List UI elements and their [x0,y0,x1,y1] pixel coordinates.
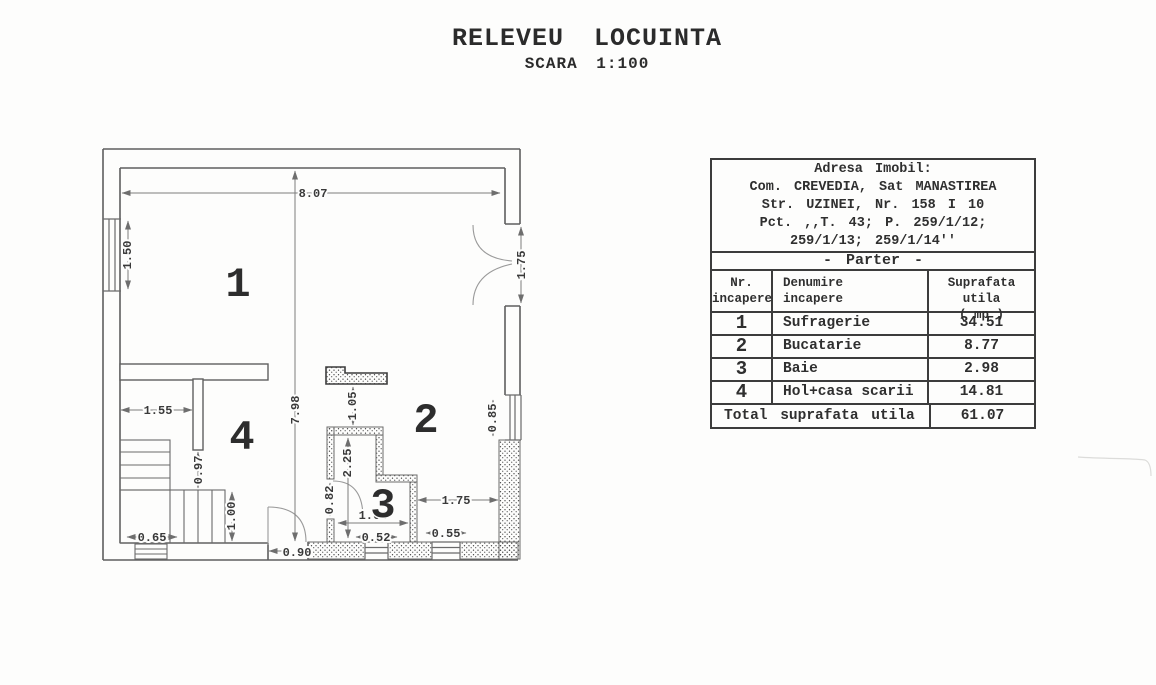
row-name: Hol+casa scarii [773,382,929,403]
table-total-row: Total suprafata utila 61.07 [712,405,1034,427]
dim-hall-width: 1.55 [144,404,173,418]
table-header: Nr. incapere Denumire incapere Suprafata… [712,271,1034,313]
table-row: 1 Sufragerie 34.51 [712,313,1034,336]
room-label-4: 4 [229,414,254,462]
page: RELEVEU LOCUINTA SCARA 1:100 [0,0,1156,685]
row-name: Bucatarie [773,336,929,357]
room-label-1: 1 [225,261,250,309]
row-area: 34.51 [929,313,1034,334]
row-area: 14.81 [929,382,1034,403]
address-line: 259/1/13; 259/1/14'' [712,233,1034,251]
address-line: Str. UZINEI, Nr. 158 I 10 [712,197,1034,215]
dim-window-bottom-2: 0.55 [432,527,461,541]
dim-height-left: 7.98 [289,396,303,425]
dim-door-right: 1.75 [515,251,529,280]
kitchen-counter [326,367,387,384]
scan-artifact [1075,445,1156,480]
dim-wall-stub: 0.97 [192,456,206,485]
dim-window-bottom-1: 0.52 [362,531,391,545]
address-block: Adresa Imobil: Com. CREVEDIA, Sat MANAST… [712,160,1034,253]
address-line: Pct. ,,T. 43; P. 259/1/12; [712,215,1034,233]
dim-window-right: 0.85 [486,404,500,433]
table-row: 4 Hol+casa scarii 14.81 [712,382,1034,405]
entry-door [268,507,306,545]
staircase [120,440,225,559]
window-left [103,219,121,291]
dim-stairs: 1.00 [225,502,239,531]
double-door-right [473,225,512,305]
dim-entry-door: 0.90 [283,546,312,560]
info-table: Adresa Imobil: Com. CREVEDIA, Sat MANAST… [710,158,1036,429]
row-name: Baie [773,359,929,380]
row-nr: 3 [712,359,773,380]
dim-width-top: 8.07 [299,187,328,201]
floor-label: - Parter - [712,253,1034,271]
window-bottom-2 [432,542,460,559]
dim-kitchen-right: 1.75 [442,494,471,508]
row-name: Sufragerie [773,313,929,334]
dim-counter-gap: 1.05 [346,392,360,421]
row-area: 2.98 [929,359,1034,380]
row-area: 8.77 [929,336,1034,357]
table-row: 2 Bucatarie 8.77 [712,336,1034,359]
room-label-2: 2 [413,397,438,445]
dim-window-left: 1.50 [121,241,135,270]
total-label: Total suprafata utila [712,405,931,427]
window-right [505,395,521,440]
address-line: Com. CREVEDIA, Sat MANASTIREA [712,179,1034,197]
address-title: Adresa Imobil: [712,161,1034,179]
table-row: 3 Baie 2.98 [712,359,1034,382]
dim-bath-door: 0.82 [323,486,337,515]
total-value: 61.07 [931,408,1034,424]
floor-plan: 8.07 7.98 1.50 1.75 1.55 0.97 1.00 0.65 … [0,0,600,685]
dim-bath-height: 2.25 [341,449,355,478]
row-nr: 4 [712,382,773,403]
row-nr: 1 [712,313,773,334]
dim-step: 0.65 [138,531,167,545]
room-label-3: 3 [370,482,395,530]
row-nr: 2 [712,336,773,357]
